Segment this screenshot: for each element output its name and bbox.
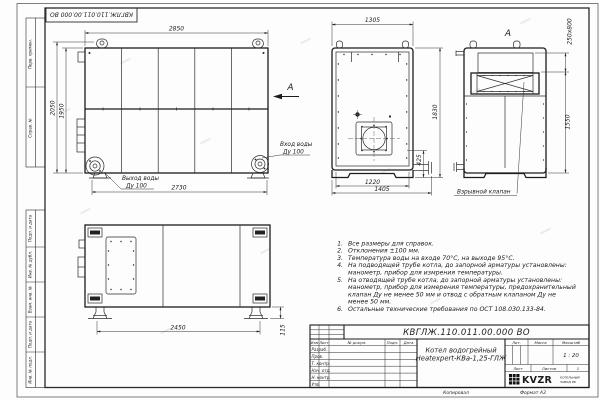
dim-side-bottom: 2730 [171,185,186,192]
row-razrab: Разраб. [312,347,328,352]
dim-top-foot: 115 [280,324,287,336]
note-num: 1. [337,240,343,247]
dim-front-right: 1830 [432,104,439,119]
col-podp: Подп. [387,340,399,345]
logo-text: KVZR [522,375,553,386]
margin-label-vzam-inv: Взам. инв. № [28,286,33,313]
note-text: манометр, прибор для измрения температур… [348,269,503,277]
sheet-label: Лист [512,366,523,371]
col-izm: Изм [311,340,319,345]
row-utv: Утв. [312,382,320,387]
view-a-dimensions [535,53,569,173]
logo-caption-2: ЗАВОД РФ [560,380,577,384]
margin-label-inv-podl: Инв. № подл. [28,356,33,384]
dim-front-bottom-outer: 1405 [374,186,389,193]
dim-front-right-small: 425 [416,154,423,166]
row-nkontr: Н. контр. [312,375,331,380]
margin-label-podp-data-1: Подп. и дата [28,214,33,242]
top-dimensions [97,307,284,335]
section-mark-label: А [286,83,293,93]
note-text: Температура воды на входе 70°С, на выход… [348,254,515,262]
note-text: клапан Ду не менее 50 мм и отвод с обрат… [348,290,556,298]
section-arrow-a: А [273,83,299,99]
note-text: На подводящей трубе котла, до запорной а… [348,261,567,269]
row-prov: Пров. [312,354,324,359]
note-text: Отклонения ±100 мм. [348,248,420,255]
dim-top-width: 2450 [170,324,185,331]
mass-label: Масса [534,340,547,345]
margin-labels: Перв. примен. Справ. № Подп. и дата Инв.… [28,39,33,384]
dim-front-top: 1305 [365,17,380,24]
view-front: 1305 1830 425 1220 1405 [332,17,443,196]
col-list: Лист [318,340,329,345]
dim-front-bottom-inner: 1220 [365,179,380,186]
col-doc: № докум. [347,340,367,345]
footer-copied: Копировал [443,390,469,396]
outlet-label: Выход воды [122,176,159,182]
product-name-2: Heatexpert-КВа-1,25-ГЛЖ [416,355,507,363]
dim-side-top: 2850 [169,26,184,33]
drawing-canvas: Перв. примен. Справ. № Подп. и дата Инв.… [0,0,600,400]
outlet-dn-label: Ду 100 [125,184,147,190]
sheet-frame [17,4,598,398]
product-name-1: Котел водогрейный [425,347,497,355]
drawing-sheet: Перв. примен. Справ. № Подп. и дата Инв.… [0,0,600,400]
note-num: 2. [337,248,343,255]
sheet-footer: Копировал Формат А3 [443,390,546,396]
view-top: 2450 115 [78,225,287,336]
margin-label-inv-dubl: Инв. № дубл. [28,251,33,278]
note-num: 5. [337,277,343,284]
col-data: Дата [403,340,415,345]
note-num: 3. [337,255,343,262]
view-a: А [454,18,574,195]
margin-label-perv-primen: Перв. примен. [28,39,33,69]
dim-side-left-inner: 1950 [59,103,66,118]
company-logo: KVZR КОТЕЛЬНЫЙ ЗАВОД РФ [509,374,580,386]
title-block: КВГЛЖ.110.011.00.000 ВО Изм Лист № докум… [310,325,589,388]
dim-view-a-valve: 250x800 [567,18,574,45]
technical-notes: 1. Все размеры для справок. 2. Отклонени… [337,240,576,313]
margin-label-sprav-n: Справ. № [28,118,33,137]
note-text: Все размеры для справок. [348,240,434,247]
view-a-label: А [504,29,511,39]
margin-label-podp-data-2: Подп. и дата [28,320,33,348]
dim-side-left-outer: 2050 [50,100,57,115]
footer-format: Формат А3 [520,390,546,396]
inlet-dn-label: Ду 100 [282,150,304,156]
doc-number: КВГЛЖ.110.011.00.000 ВО [403,328,530,338]
note-text: менее 50 мм. [348,299,391,306]
top-stamp-number: КВГЛЖ.110.011.00.000 ВО [50,11,133,18]
note-num: 4. [337,262,343,269]
note-text: На отводящей трубе котла, до запорной ар… [348,276,562,284]
scale-value: 1 : 20 [563,353,579,359]
note-text: манометр, прибор для измерения температу… [348,283,576,291]
scale-label: Масштаб [562,340,581,345]
lit-label: Лит. [511,340,521,345]
inlet-label: Вход воды [280,142,313,148]
top-stamp: КВГЛЖ.110.011.00.000 ВО [46,8,137,22]
sheets-value: 1 [577,366,579,371]
row-tkontr: Т. контр. [312,361,331,366]
dim-view-a-height: 1550 [565,114,572,129]
logo-caption-1: КОТЕЛЬНЫЙ [560,375,580,380]
explosion-valve-label: Взрывной клапан [457,190,511,196]
note-num: 6. [337,306,343,313]
view-side: 2850 2730 2050 1950 Выход воды Ду 100 Вх… [50,26,313,196]
row-nachotd: Нач. отд. [312,368,331,373]
note-text: Остальные технические требования по ОСТ … [348,305,546,313]
sheets-label: Листов [541,366,557,371]
